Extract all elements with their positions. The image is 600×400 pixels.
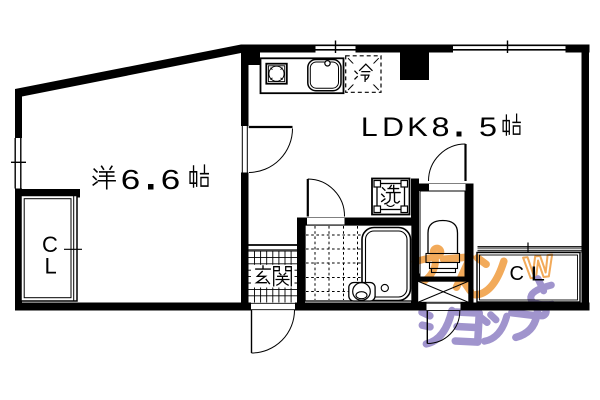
svg-text:6: 6 [121, 163, 140, 195]
svg-text:D: D [382, 112, 404, 142]
svg-text:8: 8 [431, 112, 449, 142]
svg-text:6: 6 [161, 163, 180, 195]
svg-text:K: K [407, 113, 428, 143]
svg-text:C: C [510, 263, 524, 285]
svg-text:L: L [45, 254, 57, 279]
svg-text:L: L [361, 112, 378, 142]
svg-text:5: 5 [479, 112, 497, 142]
